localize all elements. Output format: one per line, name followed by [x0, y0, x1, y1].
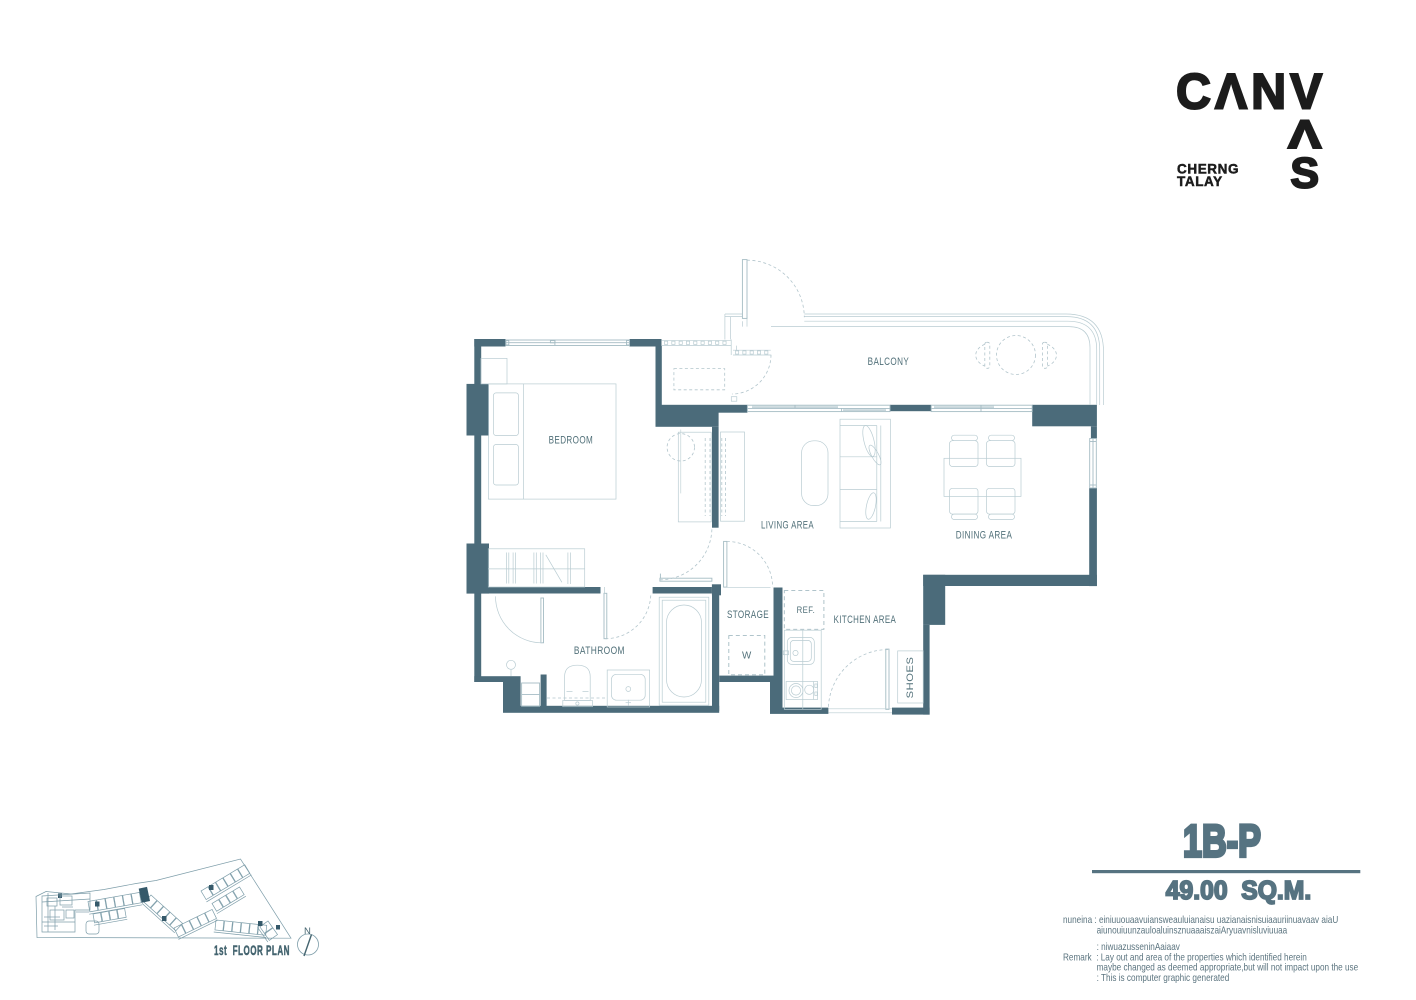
- svg-text:BEDROOM: BEDROOM: [549, 435, 594, 447]
- svg-text:BATHROOM: BATHROOM: [574, 645, 625, 657]
- svg-text:BALCONY: BALCONY: [868, 356, 910, 368]
- svg-text:DINING AREA: DINING AREA: [956, 530, 1013, 542]
- svg-text:S: S: [1290, 150, 1319, 198]
- svg-text:Remark : Lay out and area of: Remark : Lay out and area of the propert…: [1063, 952, 1307, 963]
- svg-text:aiunouiuunzauloaluinsznuaaaisz: aiunouiuunzauloaluinsznuaaaiszaiAryuavni…: [1097, 925, 1288, 936]
- svg-text:REF.: REF.: [797, 605, 816, 616]
- svg-text:KITCHEN AREA: KITCHEN AREA: [834, 614, 897, 626]
- svg-text:SHOES: SHOES: [905, 656, 915, 698]
- svg-text:STORAGE: STORAGE: [727, 609, 769, 621]
- svg-text:maybe changed as deemed approp: maybe changed as deemed appropriate,but …: [1097, 962, 1359, 973]
- svg-text:49.00 SQ.M.: 49.00 SQ.M.: [1166, 876, 1311, 905]
- svg-text:TALAY: TALAY: [1177, 174, 1223, 189]
- svg-text:1st FLOOR PLAN: 1st FLOOR PLAN: [214, 944, 290, 959]
- svg-text:W: W: [742, 651, 752, 662]
- svg-text:N: N: [304, 926, 311, 937]
- svg-text:nuneina : einiuuouaavuiansweau: nuneina : einiuuouaavuiansweauluianaisu …: [1063, 914, 1338, 925]
- svg-text:: This is computer graphic gen: : This is computer graphic generated: [1097, 972, 1230, 983]
- svg-text:1B-P: 1B-P: [1183, 817, 1261, 867]
- svg-text:LIVING AREA: LIVING AREA: [761, 520, 814, 532]
